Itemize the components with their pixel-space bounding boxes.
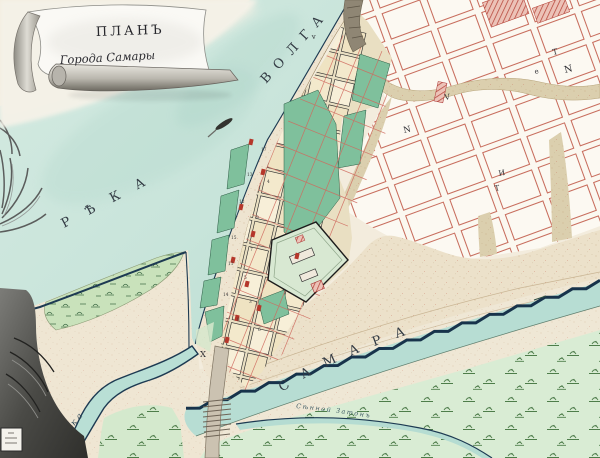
map-title: ПЛАНЪ xyxy=(96,23,165,40)
map-canvas: РѢКА ВОЛГА САМАРА рѣка Сѣнной Затонъ N Т… xyxy=(0,0,600,458)
block-number: 15 xyxy=(231,236,237,241)
historic-map-of-samara: РѢКА ВОЛГА САМАРА рѣка Сѣнной Затонъ N Т… xyxy=(0,0,600,458)
vignette-sketch xyxy=(1,428,22,451)
plot-letter: X xyxy=(200,350,207,360)
block-number: 4 xyxy=(267,180,270,185)
block-number: 5 xyxy=(244,276,247,281)
block-number: 12 xyxy=(239,200,245,205)
block-number: 8 xyxy=(237,318,240,323)
block-number: 11 xyxy=(228,262,234,267)
block-number: 14 xyxy=(223,293,229,298)
block-number: 3 xyxy=(249,300,252,305)
plot-letter: v xyxy=(310,33,316,41)
block-number: 7 xyxy=(250,248,253,253)
block-number: 13 xyxy=(247,173,253,178)
block-number: 9 xyxy=(256,216,259,221)
block-number: 6 xyxy=(258,328,261,333)
block-number: 17 xyxy=(261,148,267,153)
